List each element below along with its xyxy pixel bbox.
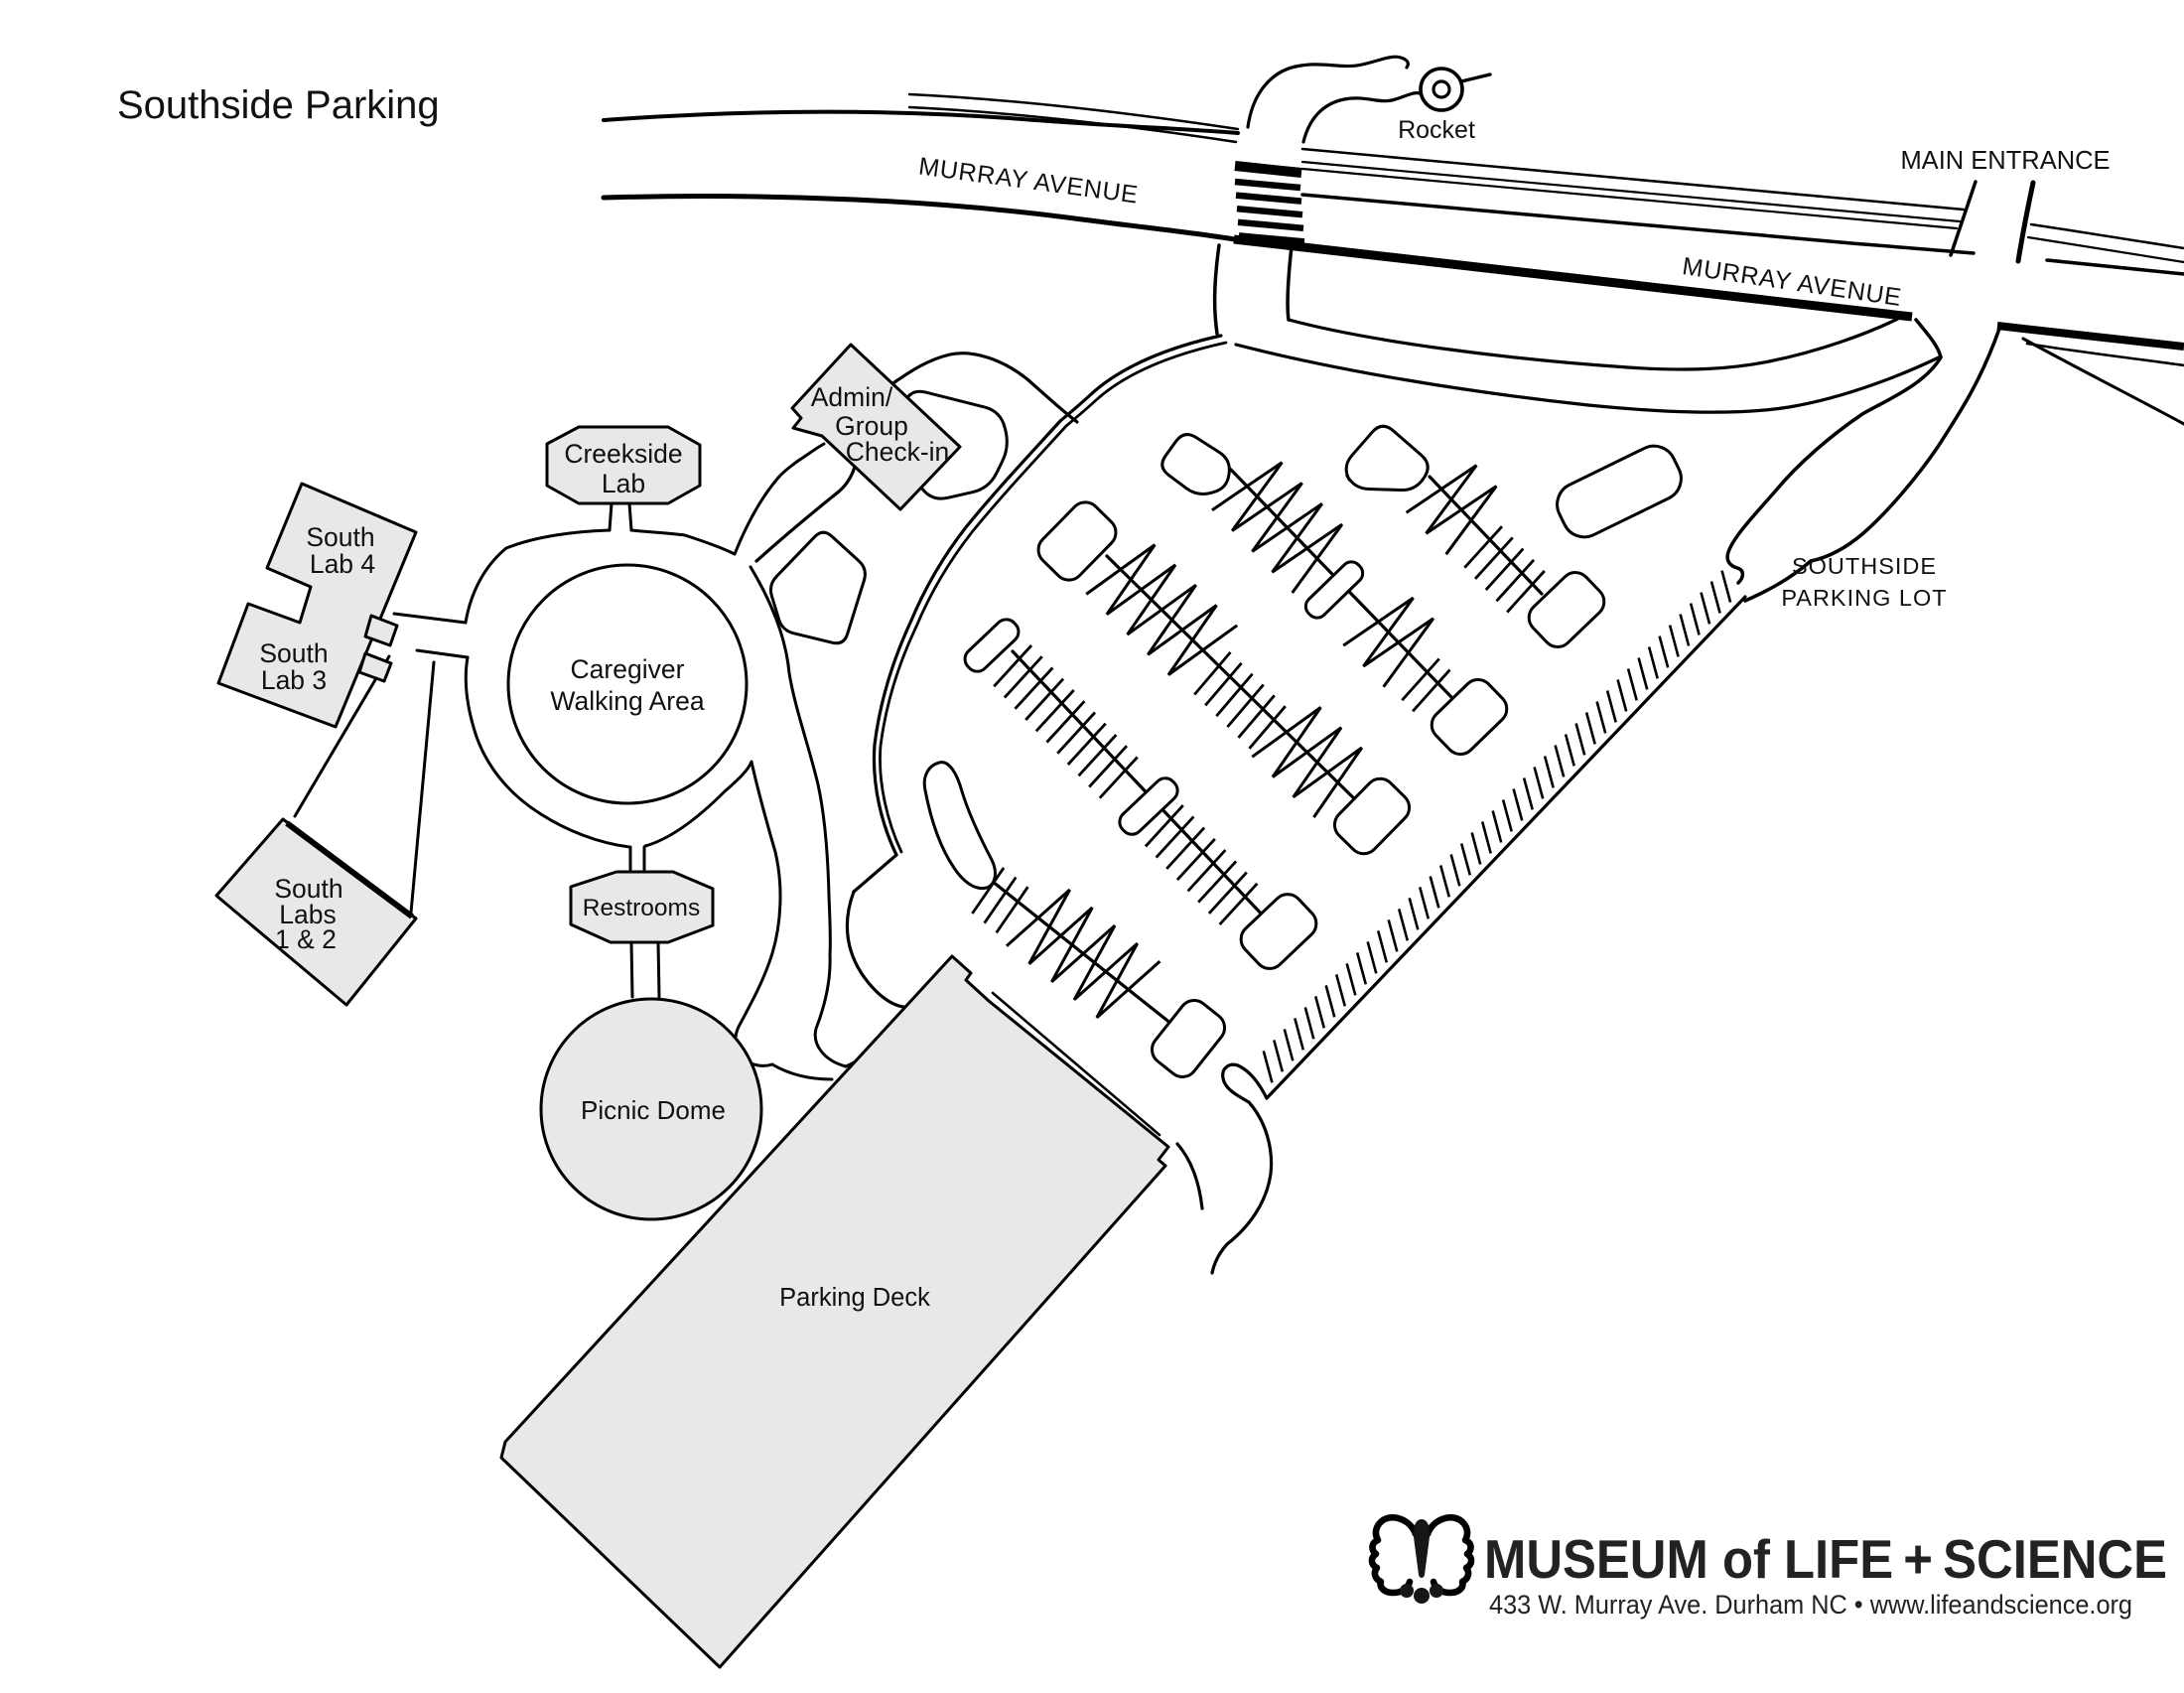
svg-text:Check-in: Check-in: [846, 437, 950, 467]
svg-text:South: South: [259, 638, 328, 668]
svg-text:Lab 3: Lab 3: [261, 665, 327, 695]
svg-text:South: South: [306, 522, 374, 552]
svg-text:Admin/: Admin/: [811, 382, 893, 412]
svg-text:MUSEUM of LIFE + SCIENCE: MUSEUM of LIFE + SCIENCE: [1484, 1528, 2167, 1590]
svg-text:Lab: Lab: [602, 469, 645, 498]
svg-text:Walking Area: Walking Area: [550, 686, 704, 716]
svg-text:Caregiver: Caregiver: [571, 654, 685, 684]
svg-text:Southside Parking: Southside Parking: [117, 83, 440, 127]
svg-text:1 & 2: 1 & 2: [275, 924, 337, 954]
svg-text:433 W. Murray Ave. Durham NC •: 433 W. Murray Ave. Durham NC • www.lifea…: [1489, 1590, 2132, 1620]
svg-text:Creekside: Creekside: [564, 439, 682, 469]
svg-text:MAIN ENTRANCE: MAIN ENTRANCE: [1900, 147, 2110, 175]
svg-text:SOUTHSIDE: SOUTHSIDE: [1792, 553, 1937, 579]
svg-text:Restrooms: Restrooms: [583, 895, 700, 921]
svg-text:Lab 4: Lab 4: [310, 549, 375, 579]
svg-text:Picnic Dome: Picnic Dome: [581, 1095, 726, 1125]
svg-text:PARKING LOT: PARKING LOT: [1781, 585, 1947, 611]
svg-text:Parking Deck: Parking Deck: [779, 1284, 930, 1312]
svg-text:Rocket: Rocket: [1398, 116, 1475, 144]
